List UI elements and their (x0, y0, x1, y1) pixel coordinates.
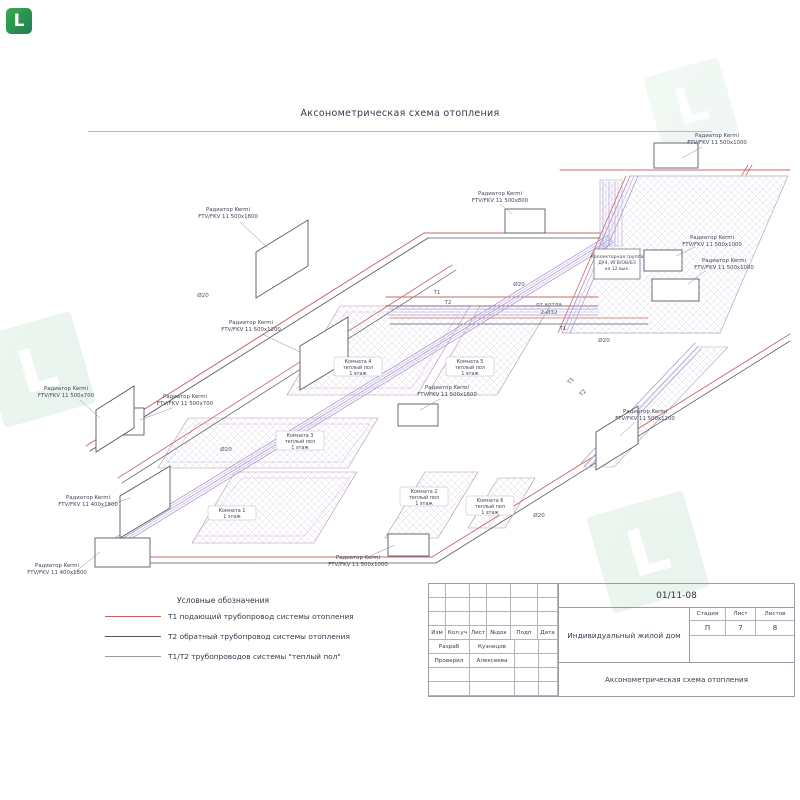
room-label: теплый пол (343, 364, 373, 371)
legend-item-t1t2: Т1/Т2 трубопроводов системы "теплый пол" (105, 652, 395, 661)
radiator-label: FTV/FKV 11 500x800 (472, 198, 529, 204)
collector-label: Коллекторная группа (591, 254, 644, 260)
pipe-diameter-label: Ø20 (513, 281, 525, 288)
room-label: 1 этаж (415, 501, 433, 507)
sheet-value: 7 (726, 621, 756, 636)
radiator-label: FTV/FKV 11 500x1000 (687, 140, 747, 146)
legend-item-label: Т2 обратный трубопровод системы отоплени… (168, 632, 350, 641)
radiator-label: FTV/FKV 11 500x1800 (198, 214, 258, 220)
document-number: 01/11-08 (559, 584, 794, 608)
t2-label: Т2 (578, 389, 588, 399)
legend: Условные обозначения Т1 подающий трубопр… (105, 596, 395, 672)
t1-line-swatch (105, 616, 161, 617)
tb-col-podp: Подп (511, 626, 538, 640)
tb-col-list: Лист (470, 626, 487, 640)
radiator-label: FTV/FKV 11 400x1800 (58, 502, 118, 508)
radiator-label: Радиатор Kermi (163, 394, 207, 400)
title-block-right: 01/11-08 Индивидуальный жилой дом Стадия… (559, 584, 794, 696)
tb-col-izm: Изм (429, 626, 446, 640)
legend-item-t2: Т2 обратный трубопровод системы отоплени… (105, 632, 395, 641)
legend-title: Условные обозначения (177, 596, 395, 605)
room-label: теплый пол (455, 364, 485, 371)
radiator-label: FTV/FKV 11 500x700 (38, 393, 95, 399)
tb-col-ndok: №док (487, 626, 511, 640)
legend-item-label: Т1 подающий трубопровод системы отоплени… (168, 612, 354, 621)
t1t2-line-swatch (105, 656, 161, 657)
tb-col-data: Дата (538, 626, 558, 640)
pipe-diameter-label: Ø20 (220, 446, 232, 453)
project-name: Индивидуальный жилой дом (559, 608, 690, 662)
radiator-label: FTV/FKV 11 500x1600 (417, 392, 477, 398)
sheet-header: Лист (726, 608, 756, 621)
pipe-diameter-label: Ø20 (533, 512, 545, 519)
radiator-label: FTV/FKV 11 500x1000 (694, 265, 754, 271)
title-block: Изм Кол.уч Лист №док Подп Дата Разраб Ку… (428, 583, 795, 697)
radiator-label: FTV/FKV 11 500x700 (157, 401, 214, 407)
radiator-label: Радиатор Kermi (336, 555, 380, 561)
legend-item-label: Т1/Т2 трубопроводов системы "теплый пол" (168, 652, 341, 661)
radiator-label: FTV/FKV 11 500x1200 (221, 327, 281, 333)
radiator-label: Радиатор Kermi (229, 320, 273, 326)
radiator-label: FTV/FKV 11 500x1200 (615, 416, 675, 422)
legend-item-t1: Т1 подающий трубопровод системы отоплени… (105, 612, 395, 621)
t2-label: Т2 (444, 300, 452, 306)
radiator-label: Радиатор Kermi (44, 386, 88, 392)
t2-line-swatch (105, 636, 161, 637)
room-label: 1 этаж (349, 371, 367, 377)
radiator-label: Радиатор Kermi (66, 495, 110, 501)
radiator-label: Радиатор Kermi (35, 563, 79, 569)
room-label: 1 этаж (461, 371, 479, 377)
title-block-left: Изм Кол.уч Лист №док Подп Дата Разраб Ку… (429, 584, 559, 696)
tb-col-koluch: Кол.уч (446, 626, 470, 640)
radiator-label: FTV/FKV 11 500x1000 (682, 242, 742, 248)
tb-role: Разраб (429, 640, 470, 654)
pipe-diameter-label: Ø20 (197, 292, 209, 299)
sheets-value: 8 (756, 621, 794, 636)
radiator-label: Радиатор Kermi (690, 235, 734, 241)
radiator-label: FTV/FKV 11 400x1800 (27, 570, 87, 576)
collector-label: ДУ4, ИГВ/ОВ/БЗ (598, 260, 636, 266)
t1-label: Т1 (566, 376, 576, 386)
tb-name: Алексеева (470, 654, 515, 668)
radiator-label: Радиатор Kermi (478, 191, 522, 197)
stage-value: П (690, 621, 726, 636)
room-label: 1 этаж (291, 445, 309, 451)
radiator-label: Радиатор Kermi (623, 409, 667, 415)
room-label: теплый пол (409, 494, 439, 501)
room-label: теплый пол (475, 503, 505, 510)
sheets-header: Листов (756, 608, 794, 621)
room-label: 1 этаж (223, 514, 241, 520)
t1-label: Т1 (433, 290, 441, 296)
pipe-diameter-label: 2-Ø32 (540, 309, 557, 316)
room-label: теплый пол (285, 438, 315, 445)
radiator-label: Радиатор Kermi (702, 258, 746, 264)
radiator-label: Радиатор Kermi (695, 133, 739, 139)
radiator-label: FTV/FKV 11 500x1000 (328, 562, 388, 568)
radiator-label: Радиатор Kermi (425, 385, 469, 391)
from-boiler-label: от котла (536, 302, 562, 308)
tb-name: Кузнецов (470, 640, 515, 654)
tb-role: Проверил (429, 654, 470, 668)
sheet-title-cell: Аксонометрическая схема отопления (559, 663, 794, 696)
room-label: 1 этаж (481, 510, 499, 516)
radiator-label: Радиатор Kermi (206, 207, 250, 213)
drawing-sheet: { "title": "Аксонометрическая схема отоп… (0, 0, 800, 800)
t1-label: Т1 (559, 326, 567, 332)
stage-header: Стадия (690, 608, 726, 621)
pipe-diameter-label: Ø20 (598, 337, 610, 344)
collector-box: Коллекторная группа ДУ4, ИГВ/ОВ/БЗ на 12… (591, 249, 644, 279)
collector-label: на 12 вых. (604, 266, 629, 272)
